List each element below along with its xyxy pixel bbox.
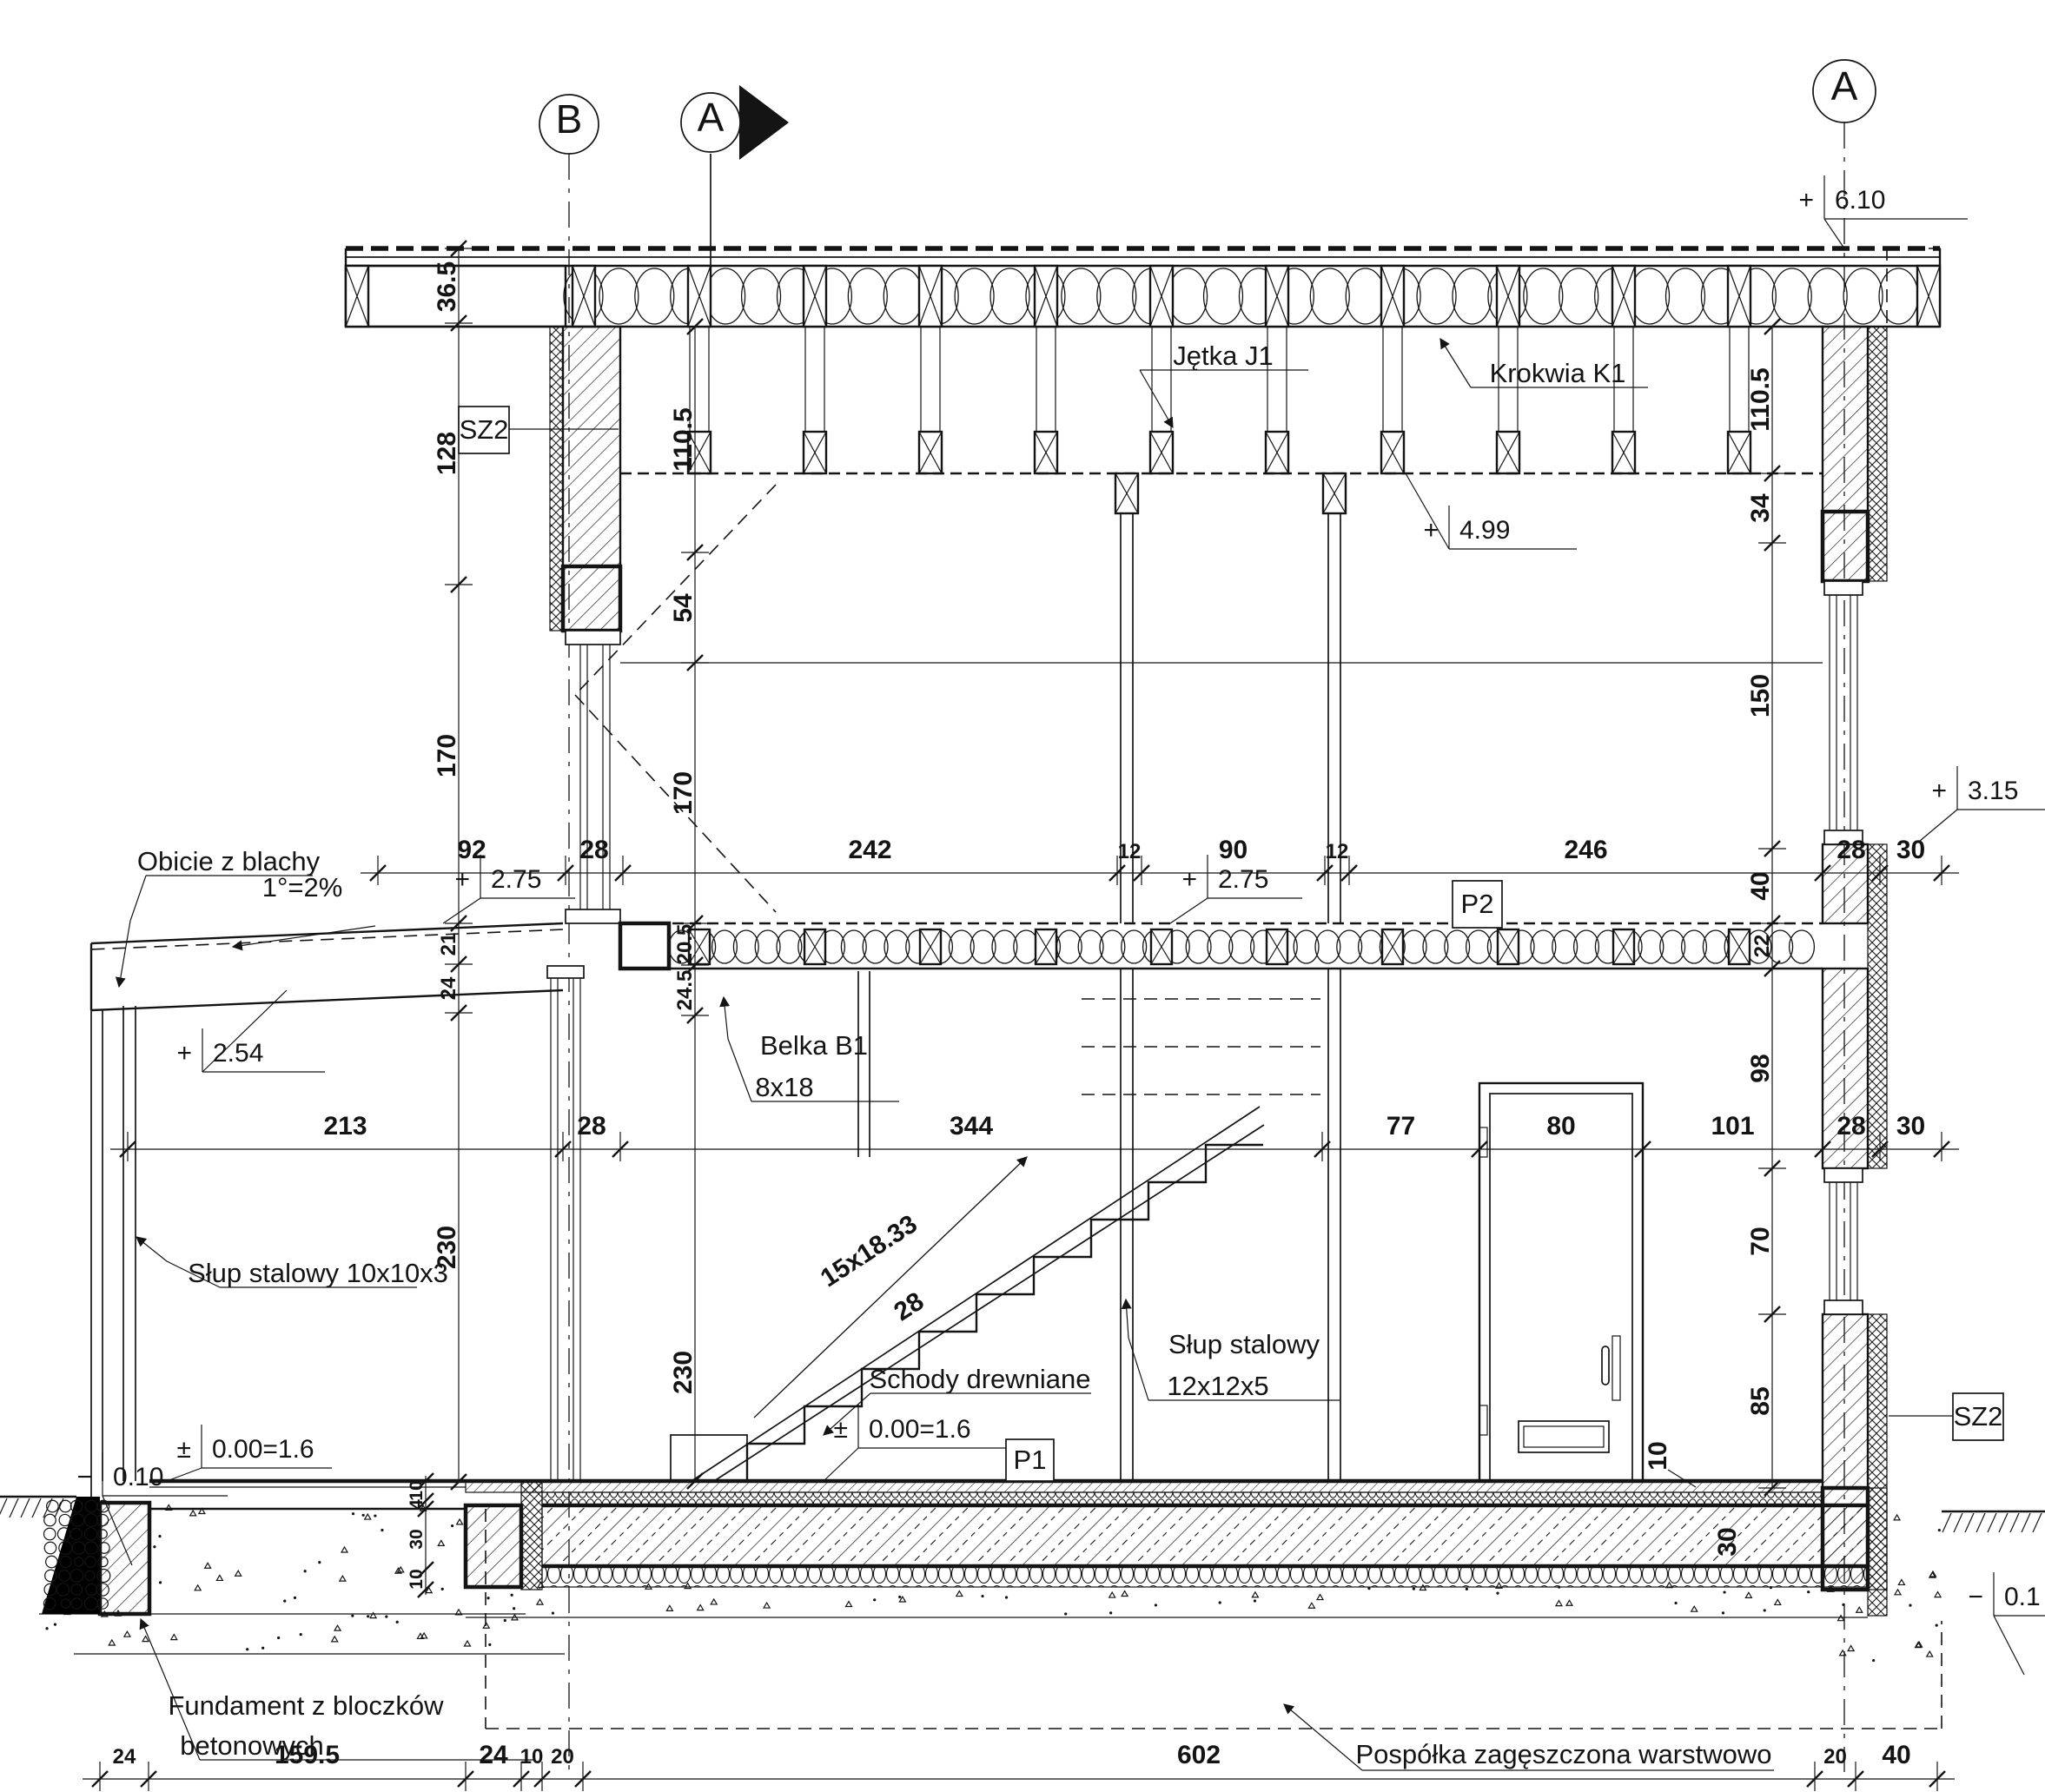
dim-label: 30 bbox=[1896, 1112, 1925, 1141]
note-roof-slope: 1°=2% bbox=[262, 872, 343, 903]
chain-dim-label: 110.5 bbox=[1746, 367, 1775, 431]
floor-layer-dim: 10 bbox=[1644, 1441, 1672, 1470]
note-pospolka: Pospółka zagęszczona warstwowo bbox=[1355, 1739, 1771, 1769]
dim-label: 90 bbox=[1219, 836, 1248, 864]
upper-floor-band bbox=[620, 923, 1823, 969]
dim-label: 20 bbox=[551, 1745, 574, 1769]
level-mark-value: 2.75 bbox=[491, 865, 541, 894]
dim-label: 40 bbox=[1882, 1741, 1910, 1769]
dim-label: 246 bbox=[1564, 836, 1607, 864]
note-jetka-j1: Jętka J1 bbox=[1173, 341, 1273, 371]
chain-dim-label: 98 bbox=[1746, 1054, 1775, 1082]
dim-label: 213 bbox=[323, 1112, 367, 1141]
dim-label: 24 bbox=[479, 1741, 508, 1769]
note-belka-b1-size: 8x18 bbox=[755, 1072, 813, 1102]
chain-dim-label: 128 bbox=[433, 432, 461, 475]
dim-label: 242 bbox=[848, 836, 891, 864]
roof-assembly bbox=[346, 248, 1940, 327]
dim-label: 28 bbox=[577, 1112, 606, 1141]
level-mark-value: 2.75 bbox=[1218, 865, 1268, 894]
gravel bbox=[42, 1497, 110, 1614]
level-mark-sign: + bbox=[1181, 865, 1197, 894]
level-mark-value: 0.00=1.6 bbox=[212, 1435, 314, 1464]
level-mark-value: 6.10 bbox=[1835, 186, 1885, 215]
dim-label: 602 bbox=[1177, 1741, 1221, 1769]
chain-dim-label: 110.5 bbox=[669, 407, 698, 471]
chain-dim-label: 170 bbox=[669, 771, 698, 815]
dim-label: 12 bbox=[1326, 840, 1349, 863]
slab-layer-dim: 4 bbox=[407, 1499, 427, 1510]
grid-letter-b: B bbox=[556, 96, 583, 142]
level-mark-sign: + bbox=[1931, 777, 1947, 805]
marker-box-p2: P2 bbox=[1461, 889, 1494, 919]
level-mark-value: 0.00=1.6 bbox=[869, 1415, 971, 1444]
note-slup-10: Słup stalowy 10x10x3 bbox=[188, 1258, 448, 1288]
dim-label: 28 bbox=[1837, 1112, 1865, 1141]
stair-formula: 28 bbox=[889, 1286, 929, 1326]
dim-label: 28 bbox=[1837, 836, 1865, 864]
chain-dim-label: 20.5 bbox=[673, 924, 697, 965]
dim-label: 101 bbox=[1711, 1112, 1754, 1141]
slab-layer-dim: 10 bbox=[407, 1480, 427, 1500]
dim-label: 28 bbox=[579, 836, 608, 864]
level-mark-sign: ± bbox=[177, 1435, 191, 1464]
chain-dim-label: 36.5 bbox=[433, 261, 461, 312]
chain-dim-label: 24.5 bbox=[673, 970, 697, 1011]
chain-dim-label: 70 bbox=[1746, 1227, 1775, 1255]
grid-letter-a: A bbox=[1831, 63, 1858, 109]
note-slup-12-size: 12x12x5 bbox=[1167, 1371, 1268, 1401]
grid-letter-a-section: A bbox=[698, 95, 725, 140]
level-mark-sign: + bbox=[176, 1039, 192, 1068]
note-krokwia-k1: Krokwia K1 bbox=[1490, 358, 1626, 388]
level-mark-sign: + bbox=[1423, 516, 1439, 545]
left-wall bbox=[550, 327, 620, 923]
dim-label: 20 bbox=[1823, 1745, 1847, 1769]
chain-dim-label: 40 bbox=[1746, 871, 1775, 900]
chain-dim-label: 54 bbox=[669, 593, 698, 623]
chain-dim-label: 85 bbox=[1746, 1386, 1775, 1415]
note-slup-12: Słup stalowy bbox=[1168, 1329, 1320, 1359]
level-mark-value: 4.99 bbox=[1459, 516, 1510, 545]
note-fundament-2: betonowych bbox=[180, 1730, 323, 1761]
dim-label: 24 bbox=[113, 1745, 136, 1769]
dim-label: 77 bbox=[1386, 1112, 1415, 1141]
chain-dim-label: 22 bbox=[1750, 935, 1774, 958]
level-mark-value: 3.15 bbox=[1968, 777, 2018, 805]
level-mark-value: 2.54 bbox=[213, 1039, 263, 1068]
marker-box-p1: P1 bbox=[1014, 1445, 1047, 1475]
level-mark-value: 0.1 bbox=[2004, 1583, 2041, 1611]
chain-dim-label: 150 bbox=[1746, 674, 1775, 717]
chain-dim-label: 21 bbox=[437, 933, 460, 956]
level-mark-sign: − bbox=[1968, 1583, 1983, 1611]
right-wall bbox=[1823, 327, 1887, 1590]
level-mark-value: 0.10 bbox=[113, 1463, 163, 1491]
canopy-porch bbox=[91, 923, 584, 1497]
chain-dim-label: 34 bbox=[1746, 493, 1775, 523]
section-drawing-sheet: BAA9228242129012246283021328344778010128… bbox=[0, 0, 2045, 1792]
dim-label: 80 bbox=[1546, 1112, 1575, 1141]
building-section-drawing: BAA9228242129012246283021328344778010128… bbox=[0, 0, 2045, 1792]
level-mark-sign: + bbox=[1798, 186, 1814, 215]
chain-dim-label: 230 bbox=[669, 1351, 698, 1394]
dim-label: 12 bbox=[1118, 840, 1142, 863]
level-mark-sign: − bbox=[76, 1463, 92, 1491]
chain-dim-label: 24 bbox=[437, 976, 460, 1000]
door bbox=[1479, 1083, 1643, 1481]
stair-formula: 15x18.33 bbox=[816, 1210, 923, 1293]
dim-label: 92 bbox=[457, 836, 486, 864]
dim-label: 344 bbox=[950, 1112, 993, 1141]
marker-box-sz2-left: SZ2 bbox=[460, 414, 509, 445]
marker-box-sz2-right: SZ2 bbox=[1954, 1401, 2003, 1432]
dim-label: 10 bbox=[520, 1745, 544, 1769]
level-mark-sign: + bbox=[454, 865, 470, 894]
chain-dim-label: 170 bbox=[433, 734, 461, 777]
note-schody: Schody drewniane bbox=[869, 1364, 1090, 1394]
slab-width-dim: 30 bbox=[1713, 1527, 1742, 1556]
slab-layer-dim: 10 bbox=[407, 1569, 427, 1589]
note-fundament: Fundament z bloczków bbox=[168, 1690, 444, 1721]
slab-layer-dim: 30 bbox=[407, 1529, 427, 1549]
note-belka-b1: Belka B1 bbox=[760, 1030, 868, 1061]
